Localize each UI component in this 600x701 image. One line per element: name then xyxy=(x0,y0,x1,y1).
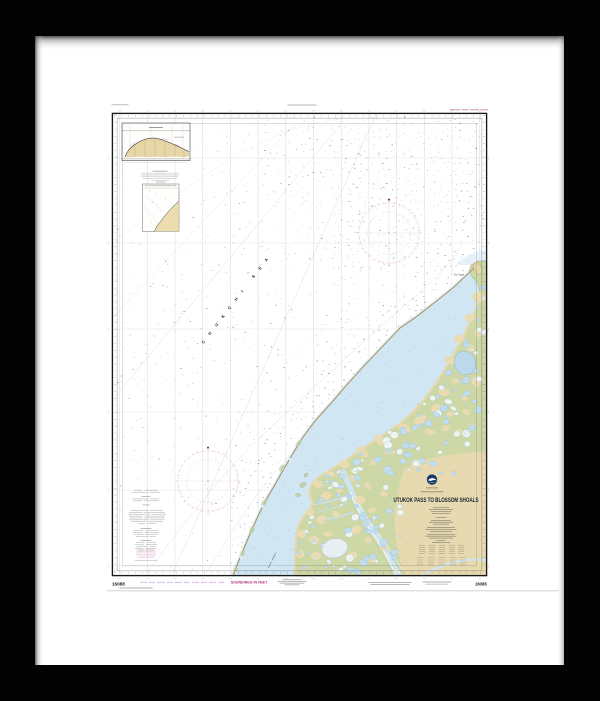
svg-text:SOUNDINGS IN FEET: SOUNDINGS IN FEET xyxy=(231,580,268,584)
svg-text:16088: 16088 xyxy=(112,582,125,587)
svg-text:Icy Cape: Icy Cape xyxy=(454,274,464,277)
svg-text:UTUKOK PASS TO BLOSSOM SHOALS: UTUKOK PASS TO BLOSSOM SHOALS xyxy=(394,497,480,504)
svg-text:16088: 16088 xyxy=(475,581,487,586)
